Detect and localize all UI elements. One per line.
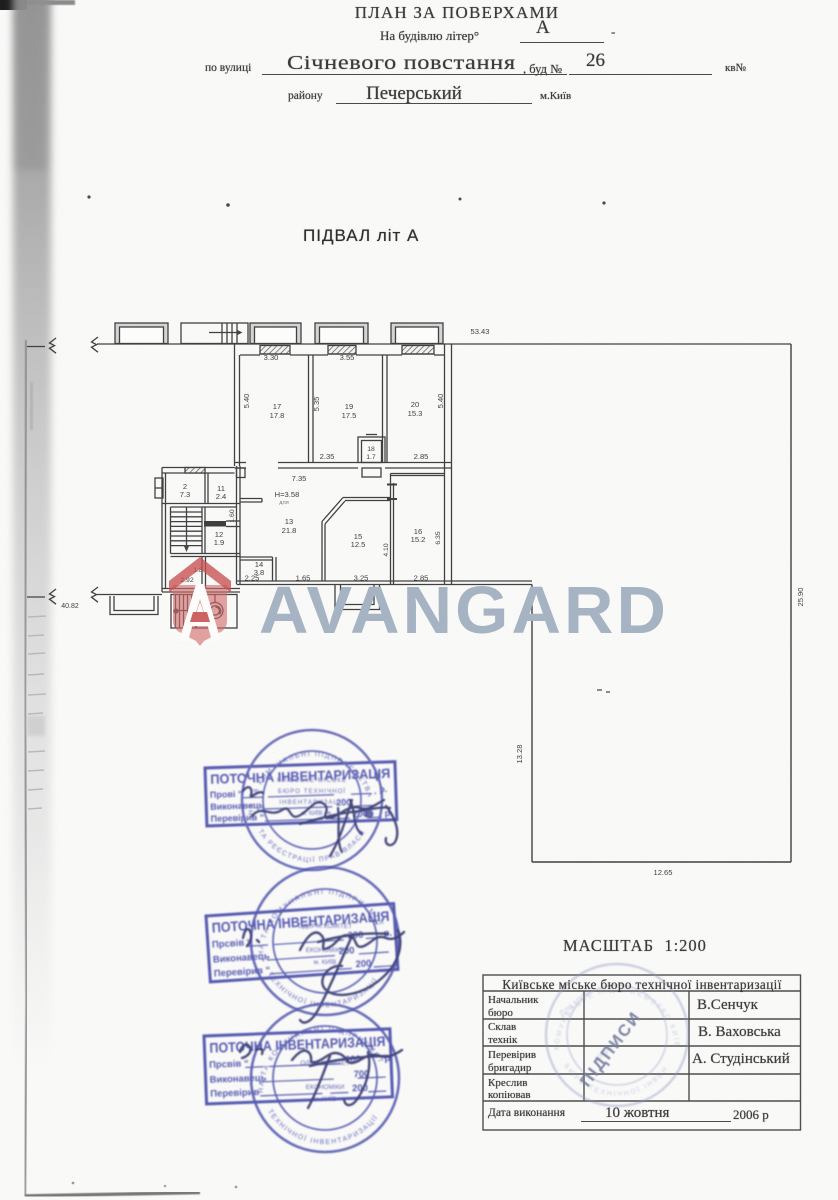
svg-text:200: 200 (355, 958, 372, 970)
svg-text:для: для (279, 500, 288, 506)
svg-text:Прсвів “: Прсвів “ (209, 1058, 249, 1071)
svg-text:ЕКОНОМІКИ: ЕКОНОМІКИ (306, 1084, 345, 1091)
svg-text:1.60: 1.60 (229, 509, 236, 522)
svg-text:13.28: 13.28 (515, 744, 524, 763)
svg-text:1.9: 1.9 (214, 538, 225, 547)
svg-text:2.25: 2.25 (245, 574, 260, 583)
svg-text:м. КИЇВ: м. КИЇВ (314, 958, 337, 966)
svg-text:7.35: 7.35 (292, 474, 307, 483)
svg-text:2.4: 2.4 (216, 492, 227, 501)
svg-text:19: 19 (345, 402, 353, 411)
svg-text:18: 18 (367, 446, 375, 453)
svg-text:53.43: 53.43 (470, 327, 489, 336)
svg-text:15.2: 15.2 (411, 535, 426, 544)
svg-text:Перевірив “: Перевірив “ (211, 812, 265, 824)
svg-text:13: 13 (285, 517, 293, 526)
svg-text:Перевірив: Перевірив (210, 1087, 260, 1100)
svg-text:12.5: 12.5 (351, 540, 366, 549)
svg-text:21.8: 21.8 (282, 526, 297, 535)
svg-text:БЮРО ТЕХНІЧНОЇ: БЮРО ТЕХНІЧНОЇ (278, 788, 346, 795)
svg-text:5.40: 5.40 (436, 394, 445, 409)
svg-text:17.5: 17.5 (342, 411, 357, 420)
svg-text:2.35: 2.35 (320, 452, 335, 461)
svg-text:5.35: 5.35 (312, 397, 321, 412)
svg-text:1.7: 1.7 (366, 454, 376, 461)
svg-text:Виконавець: Виконавець (210, 800, 265, 812)
svg-text:4.10: 4.10 (383, 543, 390, 556)
svg-text:AVANGARD: AVANGARD (259, 573, 669, 648)
svg-text:5.40: 5.40 (242, 394, 251, 409)
svg-text:25.90: 25.90 (796, 587, 805, 606)
svg-text:6.35: 6.35 (435, 531, 442, 544)
svg-text:15.3: 15.3 (408, 409, 423, 418)
svg-text:20: 20 (411, 400, 419, 409)
svg-text:3.55: 3.55 (340, 353, 355, 362)
svg-text:12.65: 12.65 (653, 868, 672, 877)
svg-text:3.30: 3.30 (264, 353, 279, 362)
svg-text:40.82: 40.82 (61, 603, 79, 610)
svg-text:7.3: 7.3 (180, 490, 191, 499)
svg-text:КИЇВСЬКЕ МІСЬКЕ: КИЇВСЬКЕ МІСЬКЕ (277, 777, 347, 784)
svg-text:Виконавець: Виконавець (209, 1073, 266, 1086)
svg-text:17: 17 (273, 402, 281, 411)
svg-text:2.85: 2.85 (414, 452, 429, 461)
svg-text:17.8: 17.8 (270, 411, 285, 420)
svg-text:H=3.58: H=3.58 (275, 490, 300, 499)
svg-text:Прові “: Прові “ (210, 789, 243, 800)
